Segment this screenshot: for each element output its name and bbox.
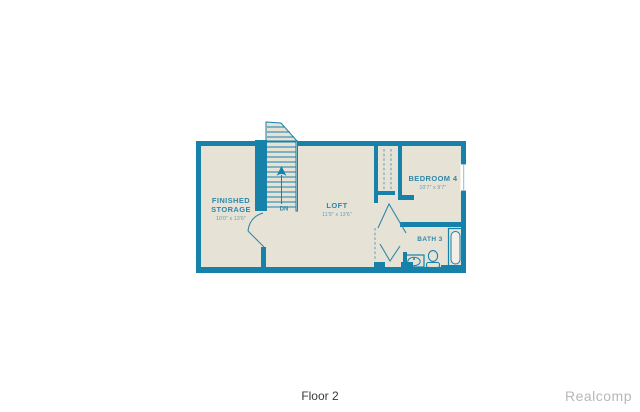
loft-closet-wall xyxy=(374,146,378,203)
closet-bottom-wall xyxy=(378,191,395,195)
bedroom-bath-wall xyxy=(400,222,461,227)
room-label-finished-storage-line2: STORAGE xyxy=(211,205,251,214)
room-label-bedroom-4: BEDROOM 4 xyxy=(408,174,457,183)
storage-wall-stub xyxy=(261,247,266,267)
closet-bedroom-wall xyxy=(398,146,402,195)
room-dims-finished-storage: 10'0" x 13'6" xyxy=(216,216,246,222)
room-dims-loft: 11'9" x 13'6" xyxy=(322,212,352,218)
stair-side-wall xyxy=(255,140,267,211)
room-label-loft: LOFT xyxy=(326,201,347,210)
dn-label: DN xyxy=(280,207,289,213)
floor-plan-page: DN xyxy=(0,0,640,412)
realcomp-watermark: Realcomp xyxy=(565,388,632,404)
room-label-finished-storage-line1: FINISHED xyxy=(212,196,250,205)
floor-plan-image: DN xyxy=(0,0,640,412)
room-label-bath-3: BATH 3 xyxy=(417,236,442,243)
floor-caption: Floor 2 xyxy=(0,389,640,403)
room-dims-bedroom-4: 10'7" x 9'7" xyxy=(419,185,446,191)
hall-wall-stub xyxy=(398,195,414,200)
stair-bulkhead xyxy=(266,122,297,141)
bedroom-window xyxy=(461,163,467,192)
